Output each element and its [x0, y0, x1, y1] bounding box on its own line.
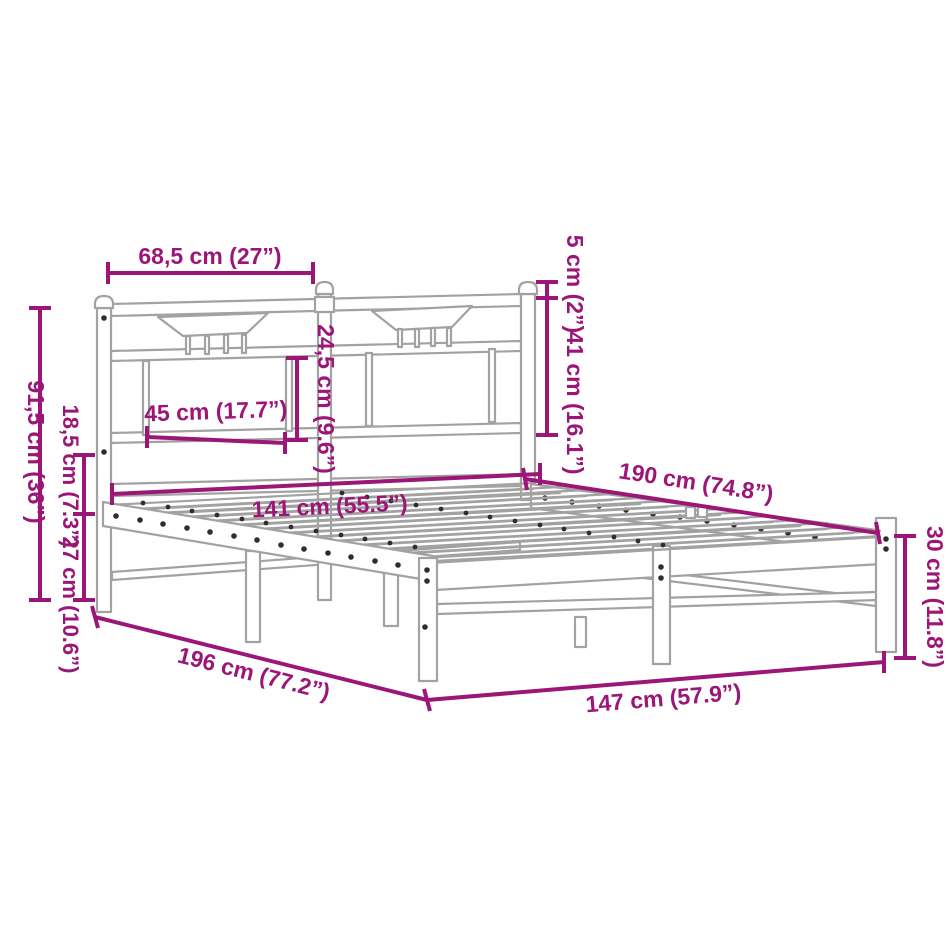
ornament-slat — [398, 329, 402, 347]
dimension-headboard-height-label: 91,5 cm (36”) — [23, 380, 49, 523]
ornament-slat — [431, 328, 435, 346]
panel-vertical — [489, 349, 495, 422]
dimension-headboard-section-width-label: 68,5 cm (27”) — [138, 243, 281, 269]
center-support-leg — [575, 617, 586, 647]
dimension-panel-gap-height-label: 24,5 cm (9.6”) — [313, 324, 339, 474]
panel-vertical — [366, 353, 372, 426]
dimension-base-height-label: 27 cm (10.6”) — [58, 537, 83, 674]
dimension-headboard-height: 91,5 cm (36”) — [23, 308, 51, 600]
dimension-foot-height: 30 cm (11.8”) — [894, 526, 947, 668]
dimension-post-above-rail-label: 5 cm (2”) — [562, 235, 588, 333]
headboard-ornament-left — [158, 313, 268, 336]
dimension-foot-height-label: 30 cm (11.8”) — [922, 526, 947, 668]
dimension-rail-to-base-label: 18,5 cm (7.3”) — [58, 404, 83, 547]
dimension-overall-length-label: 196 cm (77.2”) — [175, 642, 333, 705]
ornament-slat — [205, 336, 209, 354]
foot-middle-leg — [653, 546, 670, 664]
dimension-headboard-section-width: 68,5 cm (27”) — [108, 243, 313, 284]
ornament-slat — [224, 335, 228, 353]
dimension-panel-width: 45 cm (17.7”) — [144, 396, 288, 454]
dimension-rail-to-base: 18,5 cm (7.3”) — [58, 404, 95, 547]
headboard-ornament-right — [372, 306, 472, 330]
ornament-slat — [186, 336, 190, 354]
dimension-post-above-rail: 5 cm (2”) — [536, 235, 588, 333]
ornament-slat — [447, 328, 451, 346]
near-corner-post — [419, 558, 437, 681]
ornament-slat — [415, 329, 419, 347]
headboard-post-left — [95, 296, 113, 612]
side-support-leg — [246, 551, 260, 642]
product-dimension-diagram: 68,5 cm (27”) 5 cm (2”) 41 cm (16.1”) 24… — [0, 0, 947, 947]
bed-frame-drawing — [95, 282, 896, 681]
dimension-headboard-rail-height-label: 41 cm (16.1”) — [562, 331, 588, 474]
dimension-panel-width-label: 45 cm (17.7”) — [144, 396, 288, 427]
dimension-base-height: 27 cm (10.6”) — [58, 514, 95, 673]
ornament-slat — [242, 335, 246, 353]
headboard-post-right — [519, 282, 537, 500]
slat-connector — [686, 507, 695, 518]
bed-frame-dimension-drawing: 68,5 cm (27”) 5 cm (2”) 41 cm (16.1”) 24… — [0, 0, 947, 947]
